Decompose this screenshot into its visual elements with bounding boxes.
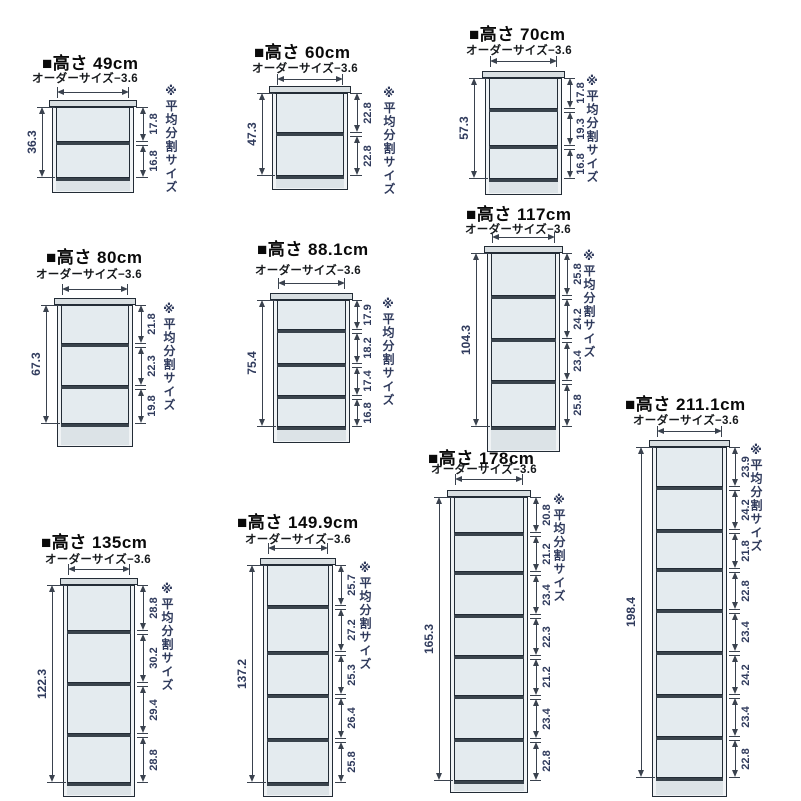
dimension-line bbox=[735, 578, 736, 603]
shelf-board bbox=[656, 568, 723, 572]
arrow-up-icon bbox=[732, 490, 738, 497]
dimension-line bbox=[735, 619, 736, 645]
shelf-board bbox=[656, 609, 723, 613]
arrow-down-icon bbox=[732, 479, 738, 486]
dimension-line bbox=[735, 453, 736, 480]
arrow-down-icon bbox=[732, 644, 738, 651]
section-dimension-label: 22.8 bbox=[738, 714, 754, 801]
dimension-tick bbox=[657, 426, 658, 437]
dimension-tick bbox=[721, 426, 722, 437]
dimension-line bbox=[735, 746, 736, 771]
shelf-board bbox=[656, 736, 723, 740]
dimension-line bbox=[735, 539, 736, 562]
dimension-line bbox=[663, 431, 716, 432]
cabinet-base bbox=[656, 781, 723, 795]
arrow-down-icon bbox=[732, 729, 738, 736]
dimension-line bbox=[641, 453, 642, 771]
arrow-up-icon bbox=[732, 533, 738, 540]
arrow-up-icon bbox=[732, 613, 738, 620]
arrow-down-icon bbox=[732, 522, 738, 529]
arrow-down-icon bbox=[638, 770, 644, 777]
shelf-board bbox=[656, 529, 723, 533]
arrow-up-icon bbox=[732, 447, 738, 454]
total-height-label: 198.4 bbox=[623, 567, 639, 657]
cabinet-interior bbox=[656, 448, 723, 795]
arrow-up-icon bbox=[732, 740, 738, 747]
shelf-board bbox=[656, 651, 723, 655]
shelf-board bbox=[656, 486, 723, 490]
arrow-down-icon bbox=[732, 687, 738, 694]
shelf-board bbox=[656, 694, 723, 698]
dimension-line bbox=[735, 704, 736, 730]
cabinet-diagram: ■高さ 211.1cmオーダーサイズ−3.6※平均分割サイズ198.423.92… bbox=[0, 0, 801, 801]
arrow-up-icon bbox=[638, 447, 644, 454]
cabinet-top-board bbox=[649, 440, 730, 447]
width-dimension bbox=[657, 426, 722, 437]
dimension-line bbox=[735, 496, 736, 523]
arrow-up-icon bbox=[732, 572, 738, 579]
arrow-down-icon bbox=[732, 602, 738, 609]
arrow-down-icon bbox=[732, 770, 738, 777]
arrow-up-icon bbox=[732, 698, 738, 705]
cabinet-spec-sheet: ■高さ 49cmオーダーサイズ−3.6※平均分割サイズ36.317.816.8■… bbox=[0, 0, 801, 801]
arrow-left-icon bbox=[657, 428, 664, 434]
arrow-up-icon bbox=[732, 655, 738, 662]
arrow-down-icon bbox=[732, 561, 738, 568]
dimension-tick bbox=[636, 447, 655, 448]
dimension-tick bbox=[636, 777, 655, 778]
dimension-line bbox=[735, 661, 736, 688]
